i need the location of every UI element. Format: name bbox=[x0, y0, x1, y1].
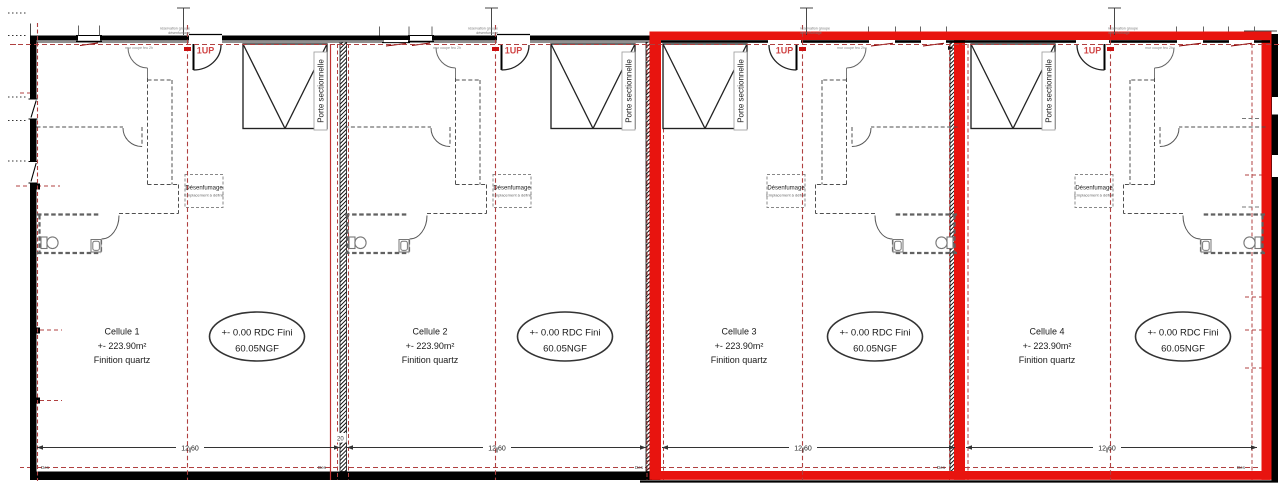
svg-text:Finition quartz: Finition quartz bbox=[1019, 355, 1076, 365]
svg-text:Emplacement à définir: Emplacement à définir bbox=[184, 193, 224, 198]
svg-text:+- 0.00 RDC Fini: +- 0.00 RDC Fini bbox=[1147, 328, 1218, 339]
svg-text:+- 0.00 RDC Fini: +- 0.00 RDC Fini bbox=[221, 328, 292, 339]
svg-text:Des: Des bbox=[318, 465, 327, 470]
svg-text:Emplacement à définir: Emplacement à définir bbox=[492, 193, 532, 198]
svg-text:+- 223.90m²: +- 223.90m² bbox=[98, 341, 147, 351]
svg-text:désenfumage: désenfumage bbox=[168, 31, 190, 35]
svg-text:Cellule 2: Cellule 2 bbox=[412, 327, 447, 337]
svg-text:+- 223.90m²: +- 223.90m² bbox=[406, 341, 455, 351]
svg-text:+- 0.00 RDC Fini: +- 0.00 RDC Fini bbox=[529, 328, 600, 339]
svg-text:60.05NGF: 60.05NGF bbox=[543, 344, 587, 355]
svg-text:60.05NGF: 60.05NGF bbox=[853, 344, 897, 355]
svg-text:mur coupe feu 2h: mur coupe feu 2h bbox=[125, 46, 153, 50]
svg-text:désenfumage: désenfumage bbox=[476, 31, 498, 35]
svg-text:+- 223.90m²: +- 223.90m² bbox=[1023, 341, 1072, 351]
svg-text:Cellule 1: Cellule 1 bbox=[104, 327, 139, 337]
svg-text:1UP: 1UP bbox=[197, 46, 215, 56]
svg-text:Porte sectionnelle: Porte sectionnelle bbox=[1045, 59, 1054, 123]
svg-text:Désenfumage: Désenfumage bbox=[767, 186, 805, 192]
svg-text:Finition quartz: Finition quartz bbox=[402, 355, 459, 365]
svg-text:mur coupe feu 2h: mur coupe feu 2h bbox=[837, 46, 865, 50]
svg-text:+- 223.90m²: +- 223.90m² bbox=[715, 341, 764, 351]
svg-text:Finition quartz: Finition quartz bbox=[94, 355, 151, 365]
svg-text:Emplacement à définir: Emplacement à définir bbox=[1074, 193, 1114, 198]
svg-text:Des: Des bbox=[635, 465, 644, 470]
svg-text:désenfumage: désenfumage bbox=[1108, 31, 1130, 35]
svg-text:Désenfumage: Désenfumage bbox=[185, 186, 223, 192]
svg-text:Des: Des bbox=[937, 465, 946, 470]
svg-text:1UP: 1UP bbox=[776, 46, 794, 56]
svg-text:1UP: 1UP bbox=[1084, 46, 1102, 56]
svg-text:Finition quartz: Finition quartz bbox=[711, 355, 768, 365]
svg-text:Porte sectionnelle: Porte sectionnelle bbox=[317, 59, 326, 123]
svg-text:Des: Des bbox=[1237, 465, 1246, 470]
svg-text:Emplacement à définir: Emplacement à définir bbox=[766, 193, 806, 198]
svg-text:+- 0.00 RDC Fini: +- 0.00 RDC Fini bbox=[839, 328, 910, 339]
svg-text:Cellule 3: Cellule 3 bbox=[721, 327, 756, 337]
svg-text:Porte sectionnelle: Porte sectionnelle bbox=[625, 59, 634, 123]
svg-text:Porte sectionnelle: Porte sectionnelle bbox=[737, 59, 746, 123]
svg-text:désenfumage: désenfumage bbox=[800, 31, 822, 35]
svg-text:60.05NGF: 60.05NGF bbox=[235, 344, 279, 355]
svg-text:60.05NGF: 60.05NGF bbox=[1161, 344, 1205, 355]
svg-text:Désenfumage: Désenfumage bbox=[1075, 186, 1113, 192]
svg-text:1UP: 1UP bbox=[505, 46, 523, 56]
svg-text:Cellule 4: Cellule 4 bbox=[1029, 327, 1064, 337]
svg-text:Des: Des bbox=[41, 465, 50, 470]
svg-text:20: 20 bbox=[337, 437, 344, 443]
svg-text:Désenfumage: Désenfumage bbox=[493, 186, 531, 192]
svg-text:mur coupe feu 2h: mur coupe feu 2h bbox=[1145, 46, 1173, 50]
svg-text:mur coupe feu 2h: mur coupe feu 2h bbox=[433, 46, 461, 50]
